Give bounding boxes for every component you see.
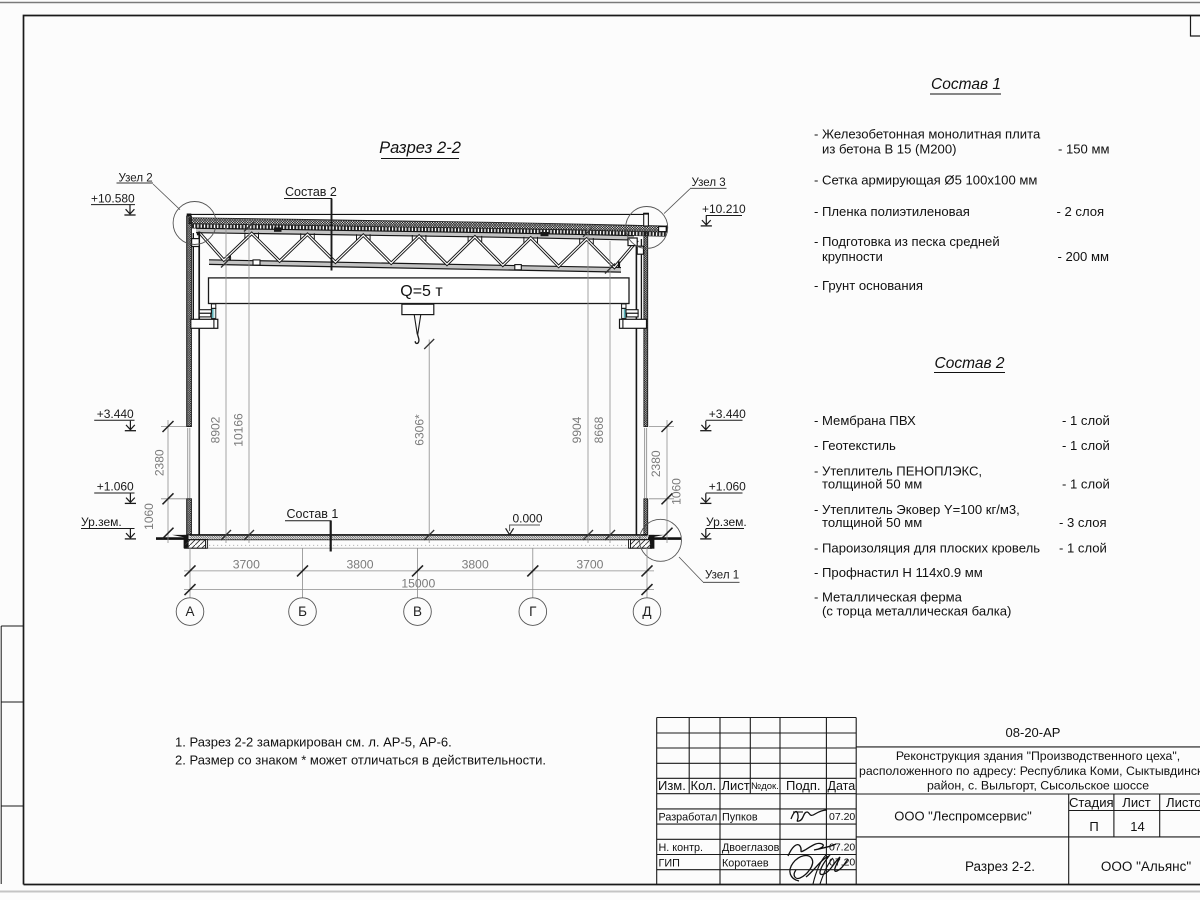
svg-text:Состав 2: Состав 2 (935, 355, 1005, 372)
svg-text:Ур.зем.: Ур.зем. (706, 515, 747, 529)
svg-text:3800: 3800 (462, 557, 489, 571)
svg-text:- Профнастил Н 114х0.9 мм: - Профнастил Н 114х0.9 мм (814, 565, 983, 580)
svg-text:- 1 слой: - 1 слой (1062, 477, 1110, 492)
svg-text:07.20: 07.20 (829, 842, 855, 854)
svg-text:ГИП: ГИП (659, 857, 680, 869)
svg-text:+3.440: +3.440 (709, 407, 746, 421)
svg-text:6306*: 6306* (413, 414, 427, 446)
svg-text:А: А (185, 604, 194, 619)
svg-text:Пупков: Пупков (722, 812, 758, 824)
svg-text:- Металлическая ферма: - Металлическая ферма (814, 590, 963, 605)
svg-text:Состав 1: Состав 1 (287, 507, 339, 521)
svg-text:Состав 1: Состав 1 (931, 76, 1001, 93)
svg-text:Узел 1: Узел 1 (705, 570, 739, 582)
svg-text:Д: Д (642, 604, 651, 619)
svg-text:Кол.: Кол. (691, 778, 717, 793)
svg-text:+10.580: +10.580 (91, 191, 135, 205)
svg-text:(с торца металлическая балка): (с торца металлическая балка) (822, 604, 1011, 619)
svg-text:15000: 15000 (401, 577, 435, 591)
svg-text:- 1 слой: - 1 слой (1059, 541, 1107, 556)
svg-text:ООО "Леспромсервис": ООО "Леспромсервис" (894, 809, 1032, 824)
svg-text:- 3 слоя: - 3 слоя (1059, 515, 1107, 530)
svg-text:Разработал: Разработал (659, 812, 718, 824)
svg-text:1. Разрез 2-2 замаркирован см.: 1. Разрез 2-2 замаркирован см. л. АР-5, … (175, 735, 452, 750)
svg-text:толщиной 50 мм: толщиной 50 мм (822, 515, 922, 530)
svg-text:Г: Г (529, 604, 537, 619)
svg-text:- 1 слой: - 1 слой (1062, 413, 1110, 428)
svg-text:Н. контр.: Н. контр. (659, 842, 704, 854)
svg-text:из бетона В 15 (М200): из бетона В 15 (М200) (822, 142, 957, 157)
svg-text:Узел 3: Узел 3 (692, 177, 726, 189)
svg-text:Коротаев: Коротаев (722, 857, 769, 869)
svg-text:- Пленка полиэтиленовая: - Пленка полиэтиленовая (814, 204, 970, 219)
svg-text:Листов: Листов (1166, 795, 1200, 810)
svg-text:3700: 3700 (576, 557, 603, 571)
svg-text:Состав 2: Состав 2 (285, 185, 337, 199)
svg-text:- 200 мм: - 200 мм (1058, 249, 1110, 264)
svg-text:- Грунт основания: - Грунт основания (814, 278, 923, 293)
svg-text:3700: 3700 (233, 557, 260, 571)
svg-text:- Мембрана ПВХ: - Мембрана ПВХ (814, 413, 916, 428)
svg-text:Изм.: Изм. (658, 778, 686, 793)
svg-text:расположенного по адресу: Респ: расположенного по адресу: Республика Ком… (859, 764, 1200, 778)
svg-text:14: 14 (1130, 819, 1144, 834)
svg-text:2. Размер со знаком * может от: 2. Размер со знаком * может отличаться в… (175, 753, 546, 768)
svg-text:- 150 мм: - 150 мм (1058, 142, 1110, 157)
svg-text:- 1 слой: - 1 слой (1062, 438, 1110, 453)
svg-text:- Сетка армирующая Ø5 100х100: - Сетка армирующая Ø5 100х100 мм (814, 173, 1037, 188)
svg-text:07.20: 07.20 (829, 811, 855, 823)
svg-text:- Пароизоляция для плоских кро: - Пароизоляция для плоских кровель (814, 541, 1040, 556)
svg-text:- 2 слоя: - 2 слоя (1057, 204, 1105, 219)
svg-text:+3.440: +3.440 (97, 407, 134, 421)
svg-text:8668: 8668 (592, 416, 606, 443)
svg-text:- Железобетонная монолитная п: - Железобетонная монолитная плита (814, 127, 1041, 142)
svg-text:3800: 3800 (346, 557, 373, 571)
svg-text:1060: 1060 (142, 503, 156, 530)
svg-text:крупности: крупности (822, 249, 883, 264)
svg-text:район, с. Выльгорт, Сысольское: район, с. Выльгорт, Сысольское шоссе (927, 779, 1149, 793)
svg-text:2380: 2380 (153, 449, 167, 476)
svg-text:08-20-АР: 08-20-АР (1006, 725, 1061, 740)
svg-text:В: В (413, 604, 422, 619)
svg-text:№док.: №док. (751, 781, 779, 792)
svg-text:1060: 1060 (670, 478, 684, 505)
svg-text:8902: 8902 (209, 416, 223, 443)
svg-text:Q=5 т: Q=5 т (400, 283, 443, 300)
svg-text:ООО "Альянс": ООО "Альянс" (1101, 859, 1191, 874)
svg-text:Дата: Дата (828, 779, 856, 793)
svg-text:Подп.: Подп. (786, 778, 821, 793)
svg-text:+10.210: +10.210 (702, 202, 746, 216)
svg-text:10166: 10166 (232, 413, 246, 447)
svg-text:Двоеглазов: Двоеглазов (722, 842, 780, 854)
svg-text:- Подготовка из песка средней: - Подготовка из песка средней (814, 234, 1000, 249)
svg-text:Ур.зем.: Ур.зем. (81, 515, 122, 529)
svg-text:Б: Б (298, 604, 307, 619)
svg-text:Стадия: Стадия (1069, 795, 1114, 810)
svg-text:+1.060: +1.060 (97, 480, 134, 494)
svg-text:Узел 2: Узел 2 (119, 172, 153, 184)
svg-text:- Геотекстиль: - Геотекстиль (814, 438, 896, 453)
svg-text:0.000: 0.000 (513, 511, 543, 525)
svg-text:9904: 9904 (570, 416, 584, 443)
svg-text:толщиной 50 мм: толщиной 50 мм (822, 477, 922, 492)
svg-text:2380: 2380 (649, 450, 663, 477)
svg-text:П: П (1089, 819, 1098, 834)
svg-text:Лист: Лист (1122, 795, 1150, 810)
svg-text:+1.060: +1.060 (709, 480, 746, 494)
svg-text:Разрез 2-2.: Разрез 2-2. (965, 859, 1035, 874)
svg-text:Лист: Лист (722, 778, 750, 793)
svg-text:Разрез 2-2: Разрез 2-2 (379, 139, 461, 157)
svg-text:Реконструкция здания "Производ: Реконструкция здания "Производственного … (896, 749, 1180, 763)
